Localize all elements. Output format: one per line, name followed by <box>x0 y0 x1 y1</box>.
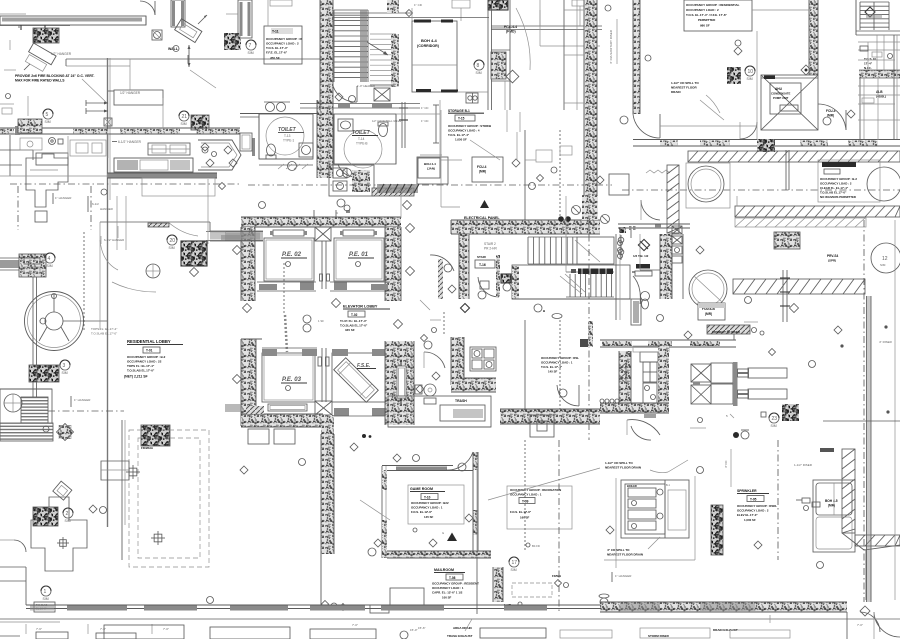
svg-text:145 SF: 145 SF <box>424 515 434 519</box>
svg-text:STORM RISER: STORM RISER <box>648 634 670 638</box>
svg-text:4" CD SPILL TO: 4" CD SPILL TO <box>607 548 630 552</box>
svg-text:FCU-4: FCU-4 <box>477 165 487 169</box>
svg-text:1-1/2" RISER: 1-1/2" RISER <box>794 463 813 467</box>
svg-text:10: 10 <box>748 69 754 75</box>
svg-text:OCCUPANCY GROUP : R: OCCUPANCY GROUP : R <box>266 37 303 41</box>
svg-text:T-01: T-01 <box>146 349 153 353</box>
svg-text:AHU: AHU <box>775 87 783 91</box>
svg-text:1/2 T.B. 1/2: 1/2 T.B. 1/2 <box>633 254 649 258</box>
svg-text:7'-6": 7'-6" <box>36 627 42 631</box>
svg-text:CONNECT TO RISER: CONNECT TO RISER <box>712 330 740 334</box>
svg-text:OCCUPANCY GROUP : RESIDENT: OCCUPANCY GROUP : RESIDENT <box>432 582 479 586</box>
svg-text:BOH 4-4: BOH 4-4 <box>421 38 438 43</box>
svg-text:7'-0": 7'-0" <box>857 623 863 627</box>
svg-text:1" CD: 1" CD <box>414 3 423 7</box>
svg-text:SIM: SIM <box>880 263 886 267</box>
svg-text:T.O.SLAB EL.17'-0": T.O.SLAB EL.17'-0" <box>127 369 155 373</box>
svg-text:CLEAR FL. EL.17'-4": CLEAR FL. EL.17'-4" <box>820 186 849 190</box>
svg-text:STAIR: STAIR <box>477 255 487 259</box>
svg-text:DRAIN: DRAIN <box>671 90 681 94</box>
svg-text:(JAN): (JAN) <box>427 167 435 171</box>
svg-text:BOILER: BOILER <box>627 484 637 488</box>
svg-text:4: 4 <box>48 256 51 262</box>
svg-text:980 SF: 980 SF <box>700 24 710 28</box>
svg-text:T-11: T-11 <box>272 30 279 34</box>
svg-text:MAILROOM: MAILROOM <box>434 568 454 572</box>
svg-text:OCCUPANCY LOAD : 2: OCCUPANCY LOAD : 2 <box>266 42 299 46</box>
svg-text:TYPE-1: TYPE-1 <box>283 139 294 143</box>
svg-text:T.O.SLAB EL.17'-0": T.O.SLAB EL.17'-0" <box>91 332 117 336</box>
svg-text:15'-6": 15'-6" <box>418 626 426 630</box>
svg-text:MAX FOR FIRE RATED WALLS: MAX FOR FIRE RATED WALLS <box>15 79 65 83</box>
svg-text:ELECTRICAL PANEL: ELECTRICAL PANEL <box>464 216 500 220</box>
svg-text:FD/WH: FD/WH <box>552 574 561 578</box>
svg-text:(MR): (MR) <box>479 170 486 174</box>
svg-text:17: 17 <box>512 560 518 566</box>
svg-text:SIM: SIM <box>45 120 51 124</box>
svg-text:T.O.S. EL.17'-4": T.O.S. EL.17'-4" <box>541 365 563 369</box>
svg-text:F.O.S. EL.12'-6": F.O.S. EL.12'-6" <box>510 510 532 514</box>
svg-text:F.F.E. EL.17'-6": F.F.E. EL.17'-6" <box>266 51 288 55</box>
svg-text:7'-0": 7'-0" <box>352 623 358 627</box>
svg-text:1" HANGER: 1" HANGER <box>74 398 91 402</box>
svg-text:(NET) 2,211 SF: (NET) 2,211 SF <box>124 375 148 379</box>
svg-text:T-14: T-14 <box>358 137 365 141</box>
svg-text:T.O.SLAB EL.17'-0": T.O.SLAB EL.17'-0" <box>340 324 368 328</box>
svg-text:T: T <box>39 320 41 324</box>
svg-text:NEAREST FLOOR: NEAREST FLOOR <box>671 86 698 90</box>
svg-text:G: G <box>442 531 444 535</box>
svg-text:TOPS FL: EL.17'-4": TOPS FL: EL.17'-4" <box>91 327 117 331</box>
svg-text:15'-0": 15'-0" <box>410 628 418 632</box>
svg-text:FCU-4: FCU-4 <box>826 109 836 113</box>
svg-text:NEAREST FLOOR DRAIN: NEAREST FLOOR DRAIN <box>605 466 641 470</box>
svg-text:1-1/2" CD SPILL TO: 1-1/2" CD SPILL TO <box>671 81 699 85</box>
svg-text:1'-0" HEADER: 1'-0" HEADER <box>357 84 375 88</box>
svg-text:NO WAIVERS PERMITTED: NO WAIVERS PERMITTED <box>820 195 856 199</box>
svg-text:T-02: T-02 <box>351 313 358 317</box>
svg-text:17'-4": 17'-4" <box>864 62 873 66</box>
svg-text:SIM: SIM <box>747 77 753 81</box>
svg-text:SIM: SIM <box>511 568 517 572</box>
svg-text:TRASH EXHAUST: TRASH EXHAUST <box>447 634 473 638</box>
svg-text:1,000 SF: 1,000 SF <box>744 518 756 522</box>
svg-text:PRV-S4: PRV-S4 <box>827 254 839 258</box>
svg-text:5: 5 <box>46 112 49 118</box>
svg-text:1-1/2" CD SPILL TO: 1-1/2" CD SPILL TO <box>605 461 633 465</box>
svg-text:F.O.S. EL.12'-6": F.O.S. EL.12'-6" <box>411 510 433 514</box>
svg-text:T-16: T-16 <box>479 263 486 267</box>
svg-text:SPRINKLER: SPRINKLER <box>737 489 757 493</box>
svg-text:1/2" CW W/ BALL VALVE: 1/2" CW W/ BALL VALVE <box>372 119 401 123</box>
svg-text:1/2" HANGER: 1/2" HANGER <box>51 52 72 56</box>
svg-text:6-1/2" HANGER: 6-1/2" HANGER <box>118 140 142 144</box>
svg-text:8: 8 <box>477 63 480 69</box>
svg-text:1,050 SF: 1,050 SF <box>455 138 467 142</box>
svg-text:SIM: SIM <box>65 519 71 523</box>
svg-text:T.O.S. EL.17'-4": T.O.S. EL.17'-4" <box>266 46 289 50</box>
svg-text:ELEVATOR LOBBY: ELEVATOR LOBBY <box>343 305 378 309</box>
svg-text:P.E. 03: P.E. 03 <box>282 377 302 383</box>
svg-text:ALB: ALB <box>876 90 883 94</box>
svg-text:OCCUPANCY LOAD : 1: OCCUPANCY LOAD : 1 <box>432 586 464 590</box>
svg-text:23: 23 <box>772 416 778 422</box>
svg-text:T-08: T-08 <box>449 576 456 580</box>
svg-text:SIM: SIM <box>62 371 68 375</box>
svg-text:T-10: T-10 <box>424 495 431 499</box>
svg-text:BOH 4-5: BOH 4-5 <box>825 499 838 503</box>
svg-text:1" HANGER: 1" HANGER <box>55 196 72 200</box>
svg-text:AREA DRAIN: AREA DRAIN <box>453 626 472 630</box>
svg-text:FD/WHA: FD/WHA <box>141 446 154 450</box>
svg-text:6-1/2: 6-1/2 <box>92 202 99 206</box>
svg-text:OCCUPANCY LOAD : 22: OCCUPANCY LOAD : 22 <box>127 360 162 364</box>
svg-text:RESIDENTIAL LOBBY: RESIDENTIAL LOBBY <box>127 339 171 344</box>
svg-text:HANGER: HANGER <box>100 207 114 211</box>
svg-text:(SPR): (SPR) <box>828 259 836 263</box>
svg-text:OCCUPANCY LOAD : 2: OCCUPANCY LOAD : 2 <box>820 182 852 186</box>
svg-text:(MR): (MR) <box>705 312 712 316</box>
svg-text:T.O.SLAB EL.17'-0": T.O.SLAB EL.17'-0" <box>820 191 847 195</box>
svg-text:B-1: B-1 <box>666 484 671 487</box>
svg-text:OCCUPANCY LOAD : 1: OCCUPANCY LOAD : 1 <box>541 361 573 365</box>
svg-text:(FMD): (FMD) <box>506 30 516 34</box>
svg-text:OCCUPANCY GROUP : STOR/B: OCCUPANCY GROUP : STOR/B <box>448 124 491 128</box>
svg-text:145 SF: 145 SF <box>548 370 558 374</box>
svg-text:OCCUPANCY LOAD : 2: OCCUPANCY LOAD : 2 <box>686 8 719 12</box>
svg-text:CAPR. EL: 12'-6" 1 1/2: CAPR. EL: 12'-6" 1 1/2 <box>432 591 463 595</box>
svg-text:SIM: SIM <box>476 71 482 75</box>
svg-text:20: 20 <box>170 238 176 244</box>
svg-text:OCCUPANCY LOAD : 1: OCCUPANCY LOAD : 1 <box>510 493 542 497</box>
svg-text:B4 FD: B4 FD <box>532 544 540 548</box>
svg-text:GAME ROOM: GAME ROOM <box>410 487 433 491</box>
svg-text:1/2" HANGER: 1/2" HANGER <box>120 91 141 95</box>
svg-text:T-05: T-05 <box>750 497 757 501</box>
svg-text:OCCUPANCY GROUP : B-2: OCCUPANCY GROUP : B-2 <box>127 355 166 359</box>
svg-text:7'-0": 7'-0" <box>100 627 106 631</box>
svg-text:(CORRIDOR): (CORRIDOR) <box>417 44 440 48</box>
svg-text:T.O.S. EL.: T.O.S. EL. <box>864 57 878 61</box>
svg-text:1 SF: 1 SF <box>318 319 324 323</box>
svg-text:PERMITTED: PERMITTED <box>698 18 716 22</box>
svg-text:OCCUPANCY LOAD : 2: OCCUPANCY LOAD : 2 <box>737 509 769 513</box>
svg-text:SIM: SIM <box>43 597 49 601</box>
svg-text:OCCUPANCY LOAD : 1: OCCUPANCY LOAD : 1 <box>411 506 443 510</box>
svg-text:TYPE-B: TYPE-B <box>356 142 368 146</box>
svg-text:T.O.S. EL.17'-4" / F.F.E. 17'-: T.O.S. EL.17'-4" / F.F.E. 17'-6" <box>686 13 728 17</box>
svg-text:SIM: SIM <box>169 246 175 250</box>
svg-text:21: 21 <box>182 114 188 120</box>
svg-text:1" CD: 1" CD <box>421 106 428 110</box>
svg-text:SIM: SIM <box>248 51 254 55</box>
svg-text:2: 2 <box>66 511 69 517</box>
svg-text:4" RISER: 4" RISER <box>879 340 893 344</box>
svg-text:SIM: SIM <box>47 264 53 268</box>
svg-text:1" CD: 1" CD <box>421 119 428 123</box>
svg-text:PR 2-HR: PR 2-HR <box>484 247 497 251</box>
svg-text:100 SF: 100 SF <box>442 596 452 600</box>
svg-text:PROVIDE 2x6 FIRE BLOCKING AT 2: PROVIDE 2x6 FIRE BLOCKING AT 24" O.C. VE… <box>15 74 95 78</box>
svg-text:STAIR 2: STAIR 2 <box>484 242 496 246</box>
svg-text:4" DIA SANITARY RISER: 4" DIA SANITARY RISER <box>609 29 613 64</box>
svg-text:T-13: T-13 <box>284 134 291 138</box>
svg-text:OCCUPANCY GROUP : B-2: OCCUPANCY GROUP : B-2 <box>820 177 857 181</box>
svg-text:OCCUPANCY GROUP : RSDL: OCCUPANCY GROUP : RSDL <box>737 504 777 508</box>
svg-text:BOH 4-4: BOH 4-4 <box>424 162 436 166</box>
svg-text:4" CD: 4" CD <box>724 461 728 468</box>
svg-text:TRASH: TRASH <box>455 399 467 403</box>
svg-text:SIM: SIM <box>181 122 187 126</box>
svg-text:OCCUPANCY GROUP : B#2: OCCUPANCY GROUP : B#2 <box>411 501 449 505</box>
svg-text:CONDENSATE: CONDENSATE <box>771 92 791 96</box>
svg-text:T.U.P. FL: EL.17'-4": T.U.P. FL: EL.17'-4" <box>340 319 367 323</box>
svg-text:SIM: SIM <box>771 424 777 428</box>
svg-text:3: 3 <box>63 363 66 369</box>
svg-text:ELEV EL.17'-0": ELEV EL.17'-0" <box>737 513 758 517</box>
svg-text:7'-0": 7'-0" <box>163 627 169 631</box>
svg-text:OCCUPANCY LOAD : 4: OCCUPANCY LOAD : 4 <box>448 129 480 133</box>
svg-text:345 SF: 345 SF <box>345 328 355 332</box>
svg-text:P.E. 01: P.E. 01 <box>349 252 369 258</box>
svg-text:TOPS FL: EL.17'-4": TOPS FL: EL.17'-4" <box>127 364 155 368</box>
svg-text:T-15: T-15 <box>458 117 465 121</box>
svg-text:NEAREST FLOOR DRAIN: NEAREST FLOOR DRAIN <box>607 553 643 557</box>
svg-text:6-1/2" HANGER: 6-1/2" HANGER <box>104 238 124 242</box>
svg-text:12: 12 <box>882 256 888 262</box>
svg-text:P.E. 02: P.E. 02 <box>282 252 302 258</box>
svg-text:7: 7 <box>249 43 252 49</box>
svg-text:OCCUPANCY GROUP : RESIDENTIAL: OCCUPANCY GROUP : RESIDENTIAL <box>686 3 740 7</box>
svg-text:STORAGE B-1: STORAGE B-1 <box>448 109 470 113</box>
svg-text:1: 1 <box>44 589 47 595</box>
svg-text:T.O.S. EL.17'-4": T.O.S. EL.17'-4" <box>448 133 470 137</box>
svg-text:1" HANGER: 1" HANGER <box>615 574 632 578</box>
svg-text:PUMP UNIT: PUMP UNIT <box>773 96 789 100</box>
